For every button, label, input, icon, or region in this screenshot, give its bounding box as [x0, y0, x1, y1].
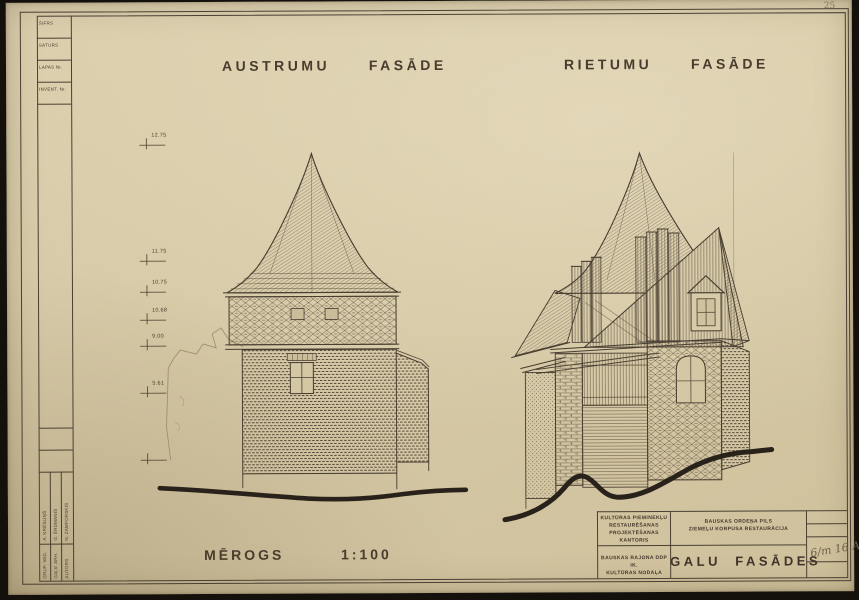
- drawing-sheet: ŠIFRS SATURS LAPAS Nr. INVENT. Nr. AUSTR…: [6, 0, 855, 595]
- signature-role: GRUP. VAD.: [42, 552, 47, 579]
- austrumu-facade-drawing: [158, 153, 466, 500]
- signature-name: N. ZAMPORSKIS: [64, 503, 69, 541]
- client-name: BAUSKAS RAJONA DDP IK. KULTŪRAS NODAĻA: [598, 554, 670, 577]
- sheet-title: GALU FASĀDES: [670, 553, 806, 569]
- project-name: BAUSKAS ORDEŅA PILS ZIEMEĻU KORPUSA REST…: [671, 517, 806, 533]
- signature-role: AUTORS: [64, 559, 69, 579]
- signature-name: G. ĒRDMANIS: [53, 509, 58, 541]
- signature-role: GALV. ARH.: [53, 552, 58, 578]
- office-name: KULTŪRAS PIEMINEKĻU RESTAURĒŠANAS PROJEK…: [598, 514, 670, 544]
- rietumu-facade-drawing: [503, 153, 772, 520]
- facade-drawings: [6, 0, 855, 595]
- signature-name: A. KRĒSLIŅŠ: [42, 511, 47, 541]
- elevation-ticks: [139, 138, 166, 464]
